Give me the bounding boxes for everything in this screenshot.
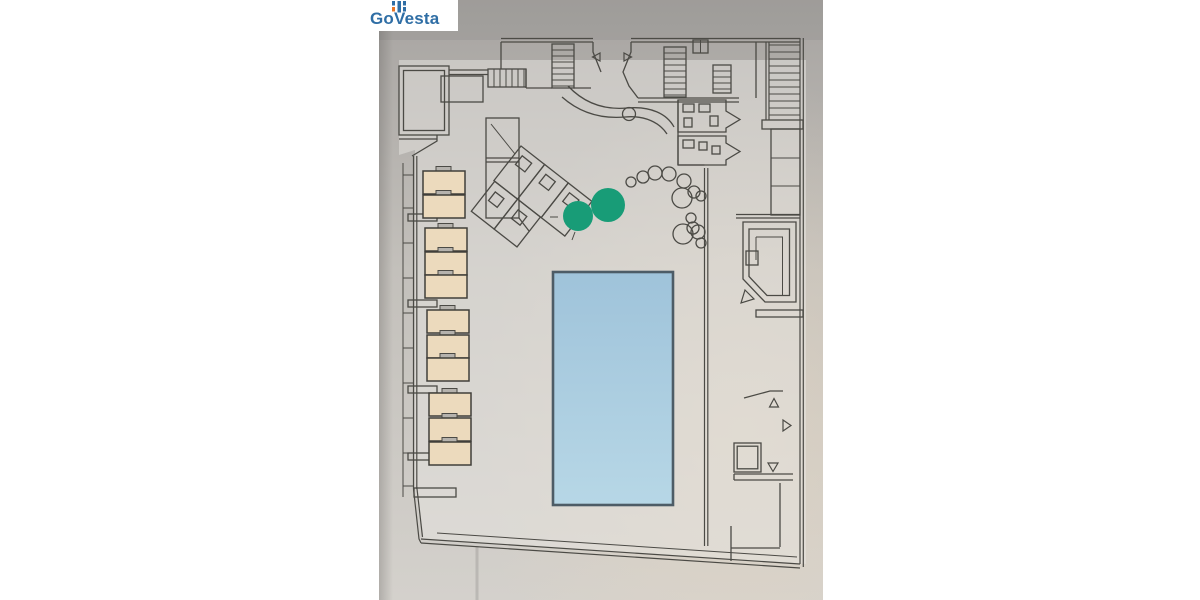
govesta-logo: GoVesta [366, 0, 458, 31]
swimming-pool [553, 272, 673, 505]
sun-lounger [423, 195, 465, 218]
floor-plan-photo[interactable] [379, 0, 823, 600]
tree [563, 201, 593, 231]
sun-lounger [427, 310, 469, 333]
floor-plan-drawing [379, 0, 823, 600]
sun-lounger [425, 275, 467, 298]
sun-loungers [423, 167, 471, 466]
sun-lounger [429, 442, 471, 465]
logo-text: GoVesta [370, 9, 439, 29]
photo-edge-shadow [379, 0, 393, 600]
sun-lounger [429, 393, 471, 416]
sun-lounger [427, 358, 469, 381]
tree [591, 188, 625, 222]
